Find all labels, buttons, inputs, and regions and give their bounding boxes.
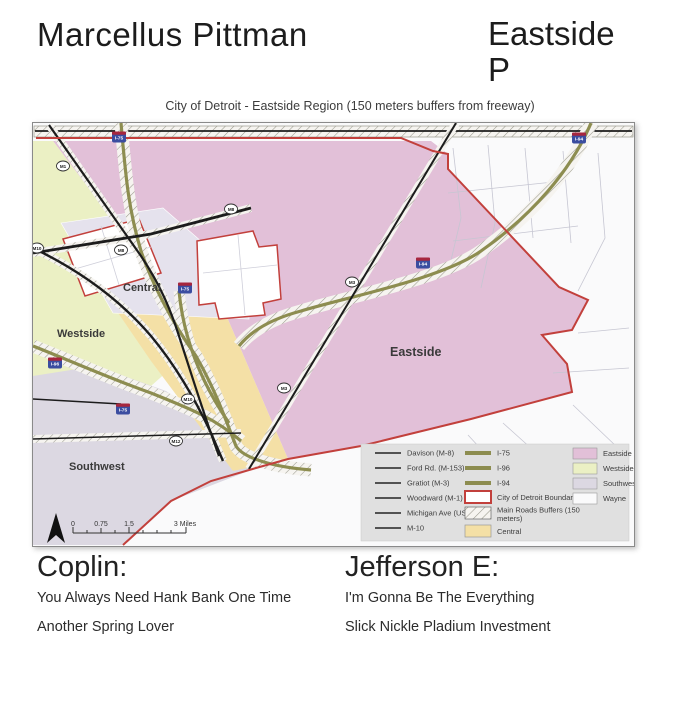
map-svg: Westside Southwest Central Eastside I-75…	[33, 123, 634, 546]
shield-m8-east: M8	[225, 204, 238, 214]
svg-text:Eastside: Eastside	[603, 449, 632, 458]
svg-text:I-96: I-96	[51, 362, 60, 368]
side-a-track-1: You Always Need Hank Bank One Time	[37, 590, 291, 606]
side-a-track-2: Another Spring Lover	[37, 619, 291, 635]
shield-m12: M12	[170, 436, 183, 446]
side-b-track-2: Slick Nickle Pladium Investment	[345, 619, 551, 635]
svg-text:Southwest: Southwest	[603, 479, 634, 488]
label-southwest: Southwest	[69, 461, 125, 473]
legend-buffer-swatch	[465, 507, 491, 519]
map-title: City of Detroit - Eastside Region (150 m…	[0, 99, 700, 113]
label-central: Central	[123, 282, 161, 294]
label-eastside: Eastside	[390, 345, 441, 359]
album-cover-page: Marcellus Pittman Eastside P City of Det…	[0, 0, 700, 714]
legend-central-swatch	[465, 525, 491, 537]
shield-i75-top: I-75	[112, 132, 126, 143]
album-title: Eastside P	[488, 16, 648, 88]
svg-text:Westside: Westside	[603, 464, 634, 473]
scale-15: 1.5	[124, 521, 134, 528]
svg-text:I-75: I-75	[181, 287, 190, 293]
svg-text:I-94: I-94	[497, 479, 510, 488]
svg-text:Davison (M-8): Davison (M-8)	[407, 449, 455, 458]
shield-m8-west: M8	[115, 245, 128, 255]
svg-text:I-75: I-75	[119, 408, 128, 414]
shield-i75-central: I-75	[178, 283, 192, 294]
svg-text:Woodward (M-1): Woodward (M-1)	[407, 494, 463, 503]
shield-i94-mid: I-94	[416, 258, 430, 269]
svg-text:M3: M3	[281, 386, 288, 391]
album-title-line1: Eastside	[488, 16, 648, 52]
shield-i75-southwest: I-75	[116, 404, 130, 415]
legend-boundary-label: City of Detroit Boundaries	[497, 493, 583, 502]
side-b-heading: Jefferson E:	[345, 551, 551, 584]
tracklist-side-a: Coplin: You Always Need Hank Bank One Ti…	[37, 551, 291, 635]
side-b-track-1: I'm Gonna Be The Everything	[345, 590, 551, 606]
scale-075: 0.75	[94, 521, 108, 528]
shield-m10-mid: M10	[182, 394, 195, 404]
shield-i94-top: I-94	[572, 133, 586, 144]
svg-text:M-10: M-10	[407, 524, 424, 533]
svg-text:I-94: I-94	[575, 137, 584, 143]
svg-text:I-75: I-75	[115, 136, 124, 142]
svg-text:Wayne: Wayne	[603, 494, 626, 503]
svg-text:Gratiot (M-3): Gratiot (M-3)	[407, 479, 450, 488]
shield-m1: M1	[57, 161, 70, 171]
shield-m3-south: M3	[278, 383, 291, 393]
legend-boundary-swatch	[465, 491, 491, 503]
svg-text:I-96: I-96	[497, 464, 510, 473]
label-westside: Westside	[57, 328, 105, 340]
svg-text:M10: M10	[184, 397, 193, 402]
shield-m10-west: M10	[33, 243, 44, 253]
legend-central-label: Central	[497, 527, 522, 536]
svg-text:M3: M3	[349, 280, 356, 285]
shield-i96: I-96	[48, 358, 62, 369]
detroit-map: Westside Southwest Central Eastside I-75…	[32, 122, 635, 547]
svg-text:I-94: I-94	[419, 262, 428, 268]
artist-name: Marcellus Pittman	[37, 16, 308, 54]
svg-text:I-75: I-75	[497, 449, 510, 458]
legend: Davison (M-8) Ford Rd. (M-153) Gratiot (…	[361, 444, 634, 541]
side-a-heading: Coplin:	[37, 551, 291, 584]
svg-text:M8: M8	[228, 207, 235, 212]
album-title-line2: P	[488, 52, 648, 88]
scale-0: 0	[71, 521, 75, 528]
shield-m3-north: M3	[346, 277, 359, 287]
svg-text:Ford Rd. (M-153): Ford Rd. (M-153)	[407, 464, 465, 473]
svg-text:M10: M10	[33, 246, 42, 251]
svg-text:M12: M12	[172, 439, 181, 444]
scale-3miles: 3 Miles	[174, 521, 197, 528]
tracklist-side-b: Jefferson E: I'm Gonna Be The Everything…	[345, 551, 551, 635]
legend-buffer-label2: meters)	[497, 514, 523, 523]
svg-text:M8: M8	[118, 248, 125, 253]
svg-text:M1: M1	[60, 164, 67, 169]
